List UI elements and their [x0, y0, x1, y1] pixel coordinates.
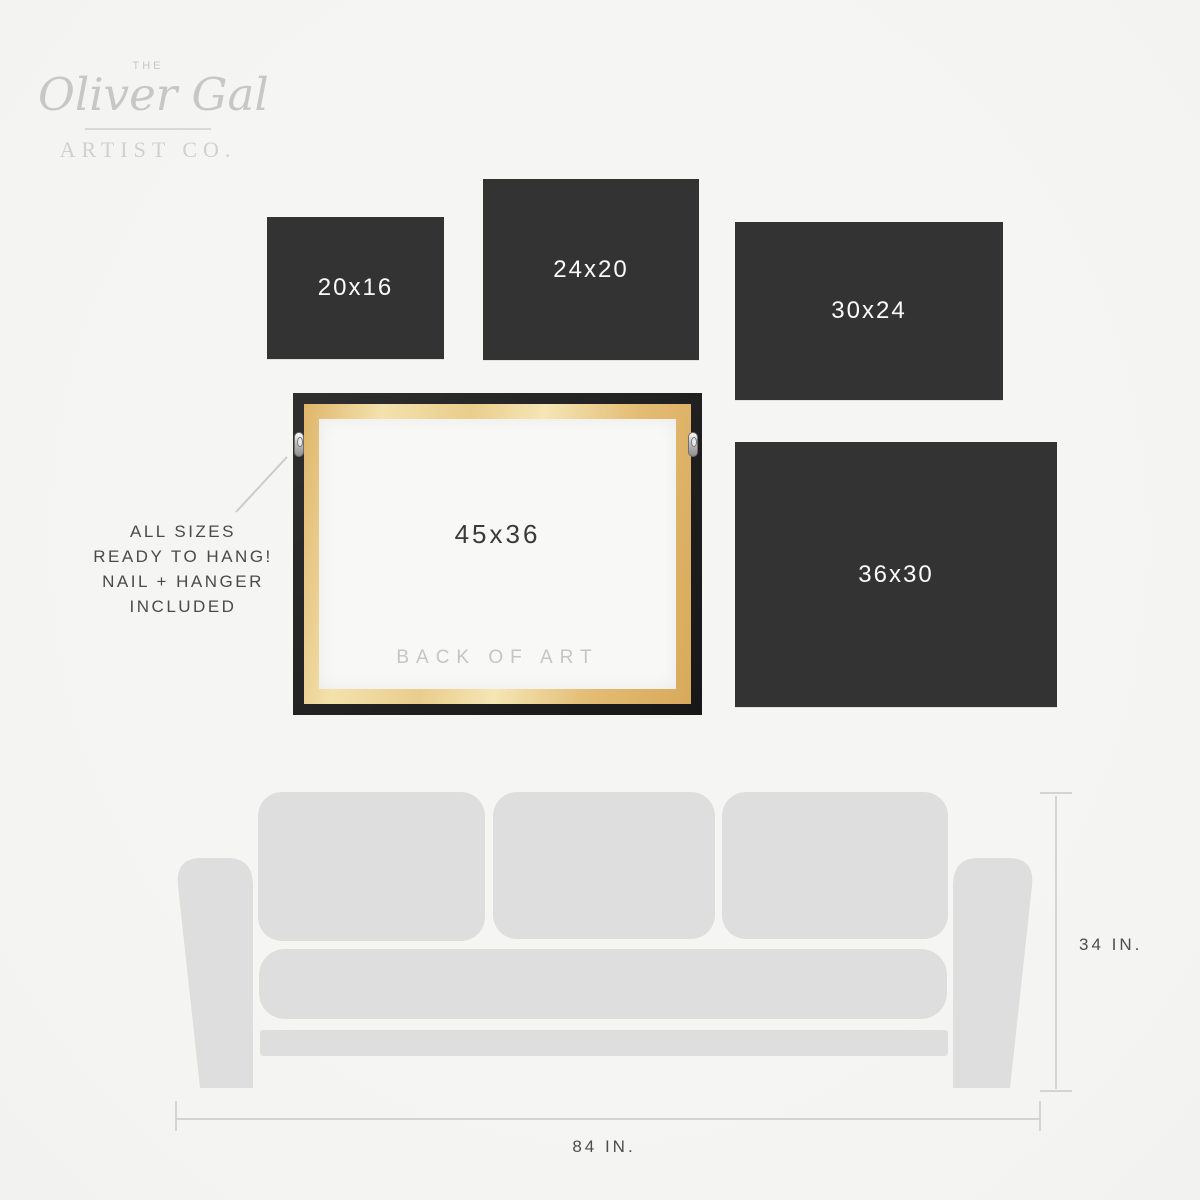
couch-base	[260, 1030, 948, 1056]
height-dimension-line	[1040, 793, 1072, 1091]
couch-scale-graphic	[0, 0, 1200, 1200]
couch-arm-left	[178, 858, 253, 1088]
couch-height-label: 34 IN.	[1079, 935, 1142, 955]
couch-width-label: 84 IN.	[534, 1137, 674, 1157]
size-guide-infographic: THE Oliver Gal ARTIST CO. 20x16 24x20 30…	[0, 0, 1200, 1200]
couch-back-cushion	[493, 792, 715, 939]
couch-back-cushion	[722, 792, 948, 939]
pointer-line	[236, 457, 287, 512]
couch-silhouette	[178, 792, 1033, 1088]
couch-back-cushion	[258, 792, 485, 941]
width-dimension-line	[176, 1101, 1040, 1131]
couch-seat-cushion	[259, 949, 947, 1019]
couch-arm-right	[953, 858, 1032, 1088]
